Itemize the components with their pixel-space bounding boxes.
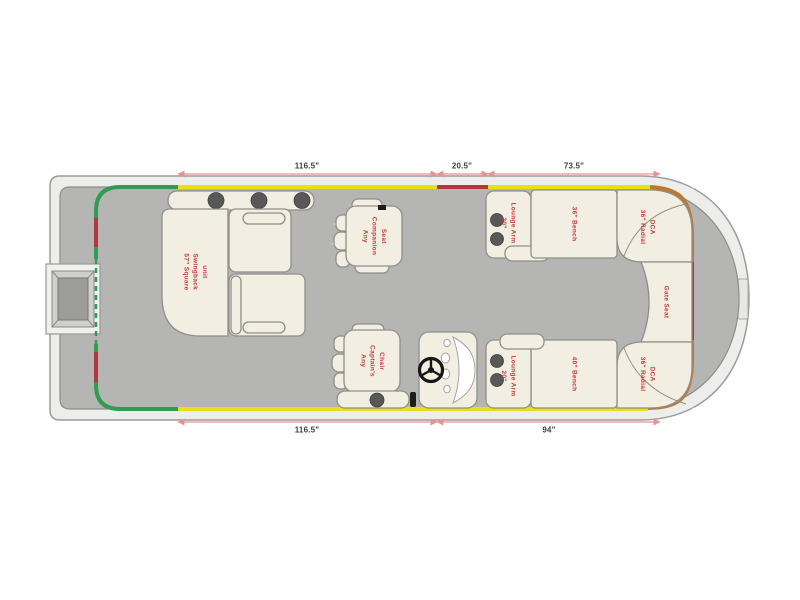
throttle-lever	[410, 392, 416, 407]
dim-top-116-5: 116.5"	[295, 162, 320, 171]
label-companion-seat: Any Companion Seat	[360, 217, 388, 255]
bow-boarding-platform	[46, 264, 100, 334]
floorplan-canvas: 57" Square Swingback unit Any Companion …	[0, 0, 800, 600]
dim-bottom-94: 94"	[542, 426, 555, 435]
label-bench-bottom: 40" Bench	[569, 357, 578, 392]
platform-tread	[58, 278, 88, 320]
gauge	[441, 353, 449, 363]
companion-latch	[378, 205, 386, 210]
helm-console	[419, 332, 477, 408]
label-swingback: 57" Square Swingback unit	[181, 253, 209, 290]
label-lounge-arm-top: 20" Lounge Arm	[499, 202, 518, 243]
cup-holder	[251, 193, 267, 209]
floorplan-drawing	[0, 0, 800, 600]
label-gate-seat: Gate Seat	[661, 286, 670, 319]
label-radial-bottom: 36" Radial DCA	[638, 357, 657, 392]
gauge	[444, 385, 450, 393]
cup-holder	[294, 193, 310, 209]
swingback-tray	[168, 191, 314, 210]
gauge	[444, 339, 450, 347]
hull-seam-bottom	[693, 408, 701, 419]
hull-seam-top	[693, 177, 701, 188]
cup-holder	[208, 193, 224, 209]
label-bench-top: 36" Bench	[569, 207, 578, 242]
dim-top-73-5: 73.5"	[564, 162, 584, 171]
swingback-armrest-lower	[231, 276, 241, 334]
dim-top-20-5: 20.5"	[452, 162, 472, 171]
dim-bottom-116-5: 116.5"	[295, 426, 320, 435]
label-radial-top: 36" Radial DCA	[638, 210, 657, 245]
swingback-backrest-upper	[243, 213, 285, 224]
lounge-arm-bottom-pad	[500, 334, 544, 349]
captain-base-pedestal	[370, 393, 384, 407]
swingback-backrest-lower	[243, 322, 285, 333]
label-captains-chair: Any Captain's Chair	[358, 345, 386, 377]
label-lounge-arm-bottom: 20" Lounge Arm	[499, 355, 518, 396]
